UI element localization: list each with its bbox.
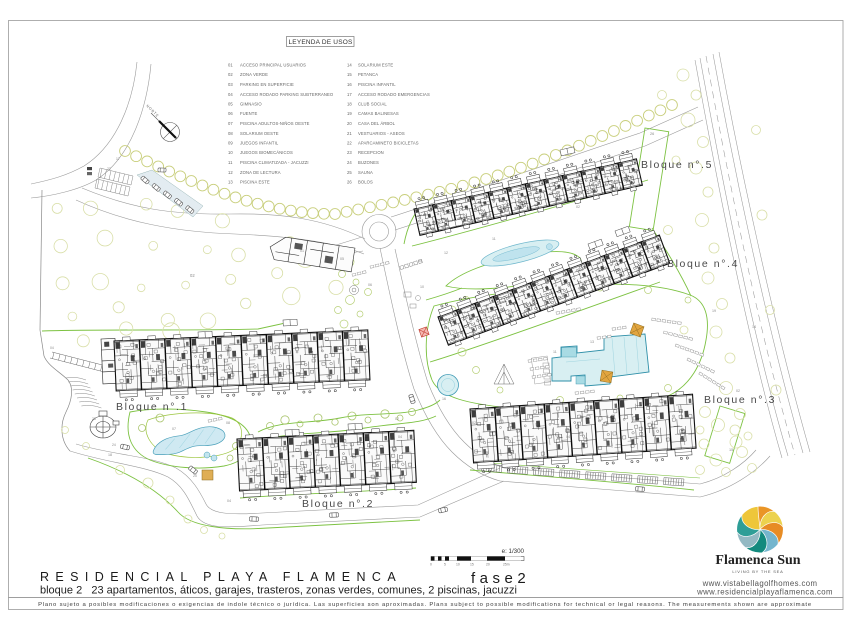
- svg-text:06: 06: [368, 283, 372, 287]
- svg-text:SOLARIUM ESTE: SOLARIUM ESTE: [358, 63, 393, 68]
- svg-text:ACCESO PRINCIPAL USUARIOS: ACCESO PRINCIPAL USUARIOS: [240, 63, 306, 68]
- svg-text:17: 17: [116, 157, 120, 161]
- svg-text:01: 01: [228, 63, 233, 68]
- svg-text:09: 09: [228, 141, 233, 146]
- svg-text:11: 11: [228, 160, 233, 165]
- svg-text:10: 10: [420, 285, 424, 289]
- svg-text:26: 26: [347, 180, 352, 185]
- svg-text:14: 14: [347, 63, 352, 68]
- svg-text:19: 19: [347, 111, 352, 116]
- svg-text:08: 08: [228, 131, 233, 136]
- svg-text:FUENTE: FUENTE: [240, 111, 257, 116]
- svg-text:12: 12: [452, 202, 456, 206]
- svg-text:19: 19: [712, 309, 716, 313]
- svg-text:14: 14: [752, 325, 756, 329]
- svg-text:RECEPCION: RECEPCION: [358, 150, 384, 155]
- svg-text:Flamenca Sun: Flamenca Sun: [715, 553, 800, 568]
- svg-text:BUZONES: BUZONES: [358, 160, 379, 165]
- svg-text:ACCESO RODADO EMERGENCIAS: ACCESO RODADO EMERGENCIAS: [358, 92, 430, 97]
- svg-text:CAMAS BALINESAS: CAMAS BALINESAS: [358, 111, 399, 116]
- svg-text:02: 02: [190, 273, 195, 278]
- svg-text:bloque 2 23 apartamentos, át: bloque 2 23 apartamentos, áticos, garaje…: [40, 585, 517, 597]
- svg-text:20: 20: [193, 474, 197, 478]
- svg-text:e: 1/300: e: 1/300: [502, 548, 525, 555]
- svg-text:06: 06: [228, 111, 233, 116]
- svg-text:PISCINA ESTE: PISCINA ESTE: [240, 180, 270, 185]
- svg-text:10: 10: [456, 563, 460, 567]
- svg-text:23: 23: [92, 417, 96, 421]
- svg-text:SAUNA: SAUNA: [358, 170, 373, 175]
- svg-text:02: 02: [736, 389, 740, 393]
- svg-text:24: 24: [347, 160, 352, 165]
- svg-text:08: 08: [226, 421, 230, 425]
- svg-text:18: 18: [347, 102, 352, 107]
- svg-text:22: 22: [347, 141, 352, 146]
- svg-text:18: 18: [108, 453, 112, 457]
- svg-text:16: 16: [347, 82, 352, 87]
- svg-text:04: 04: [566, 435, 570, 439]
- svg-text:VESTUARIOS - ASEOS: VESTUARIOS - ASEOS: [358, 131, 405, 136]
- svg-text:21: 21: [347, 131, 352, 136]
- svg-text:Bloque n°.1: Bloque n°.1: [116, 401, 188, 413]
- svg-text:13: 13: [590, 340, 594, 344]
- svg-text:13: 13: [228, 180, 233, 185]
- svg-text:02: 02: [395, 417, 399, 421]
- svg-text:04: 04: [227, 499, 231, 503]
- svg-text:02: 02: [472, 421, 476, 425]
- svg-text:20: 20: [347, 121, 352, 126]
- svg-text:RESIDENCIAL PLAYA FLAMENCA: RESIDENCIAL PLAYA FLAMENCA: [40, 570, 402, 584]
- svg-text:BOLOS: BOLOS: [358, 180, 373, 185]
- svg-text:ACCESO RODADO PARKING SUBTERRA: ACCESO RODADO PARKING SUBTERRANEO: [240, 92, 334, 97]
- svg-text:04: 04: [228, 92, 233, 97]
- svg-text:20: 20: [486, 563, 490, 567]
- svg-text:5: 5: [444, 563, 446, 567]
- svg-text:24: 24: [112, 443, 116, 447]
- svg-text:LEYENDA DE USOS: LEYENDA DE USOS: [288, 39, 353, 46]
- svg-text:PARKING EN SUPERFICIE: PARKING EN SUPERFICIE: [240, 82, 294, 87]
- svg-text:Bloque n°.2: Bloque n°.2: [302, 498, 374, 510]
- svg-text:04: 04: [50, 346, 54, 350]
- svg-text:25m: 25m: [503, 563, 510, 567]
- svg-text:17: 17: [347, 92, 352, 97]
- svg-text:GIMNASIO: GIMNASIO: [240, 102, 262, 107]
- svg-text:04: 04: [398, 435, 402, 439]
- svg-text:APARCAMINETO BICICLETAS: APARCAMINETO BICICLETAS: [358, 141, 419, 146]
- svg-text:07: 07: [172, 427, 176, 431]
- svg-text:11: 11: [492, 237, 496, 241]
- svg-text:23: 23: [347, 150, 352, 155]
- svg-text:PISCINA INFANTIL: PISCINA INFANTIL: [358, 82, 396, 87]
- svg-text:12: 12: [228, 170, 233, 175]
- svg-text:PETANCA: PETANCA: [358, 72, 378, 77]
- svg-text:JUEGOS INFANTIL: JUEGOS INFANTIL: [240, 141, 279, 146]
- svg-text:Bloque n°.5: Bloque n°.5: [641, 159, 713, 171]
- svg-text:07: 07: [228, 121, 233, 126]
- svg-text:ZONA DE LECTURA: ZONA DE LECTURA: [240, 170, 281, 175]
- svg-text:22: 22: [107, 167, 111, 171]
- svg-text:JUEGOS BIOMECÁNICOS: JUEGOS BIOMECÁNICOS: [240, 150, 293, 155]
- svg-text:05: 05: [340, 257, 344, 261]
- svg-text:SOLARIUM OESTE: SOLARIUM OESTE: [240, 131, 279, 136]
- svg-text:16: 16: [442, 397, 446, 401]
- svg-text:02: 02: [228, 72, 233, 77]
- svg-text:PISCINA ADULTOS-NIÑOS OESTE: PISCINA ADULTOS-NIÑOS OESTE: [240, 121, 310, 126]
- svg-text:LIVING BY THE SEA: LIVING BY THE SEA: [732, 569, 783, 574]
- svg-text:Plano sujeto a posibles modifi: Plano sujeto a posibles modificaciones o…: [38, 602, 812, 608]
- svg-text:05: 05: [228, 102, 233, 107]
- svg-text:15: 15: [729, 448, 733, 452]
- svg-text:Bloque n°.4: Bloque n°.4: [667, 258, 739, 270]
- svg-text:04: 04: [418, 259, 422, 263]
- svg-text:26: 26: [650, 132, 654, 136]
- svg-text:02: 02: [576, 205, 580, 209]
- svg-text:25: 25: [347, 170, 352, 175]
- svg-text:Bloque n°.3: Bloque n°.3: [704, 394, 776, 406]
- svg-text:ZONA VERDE: ZONA VERDE: [240, 72, 268, 77]
- svg-text:0: 0: [430, 563, 432, 567]
- svg-text:10: 10: [228, 150, 233, 155]
- svg-text:CASA DEL ÁRBOL: CASA DEL ÁRBOL: [358, 121, 396, 126]
- svg-text:CLUB SOCIAL: CLUB SOCIAL: [358, 102, 387, 107]
- svg-text:www.residencialplayaflamenca.c: www.residencialplayaflamenca.com: [696, 588, 833, 597]
- svg-text:15: 15: [470, 563, 474, 567]
- svg-text:03: 03: [228, 82, 233, 87]
- svg-text:12: 12: [444, 251, 448, 255]
- svg-text:11: 11: [553, 350, 557, 354]
- svg-text:01: 01: [300, 249, 304, 253]
- svg-text:15: 15: [347, 72, 352, 77]
- svg-text:PISCINA CLIMATIZADA - JACUZZI: PISCINA CLIMATIZADA - JACUZZI: [240, 160, 309, 165]
